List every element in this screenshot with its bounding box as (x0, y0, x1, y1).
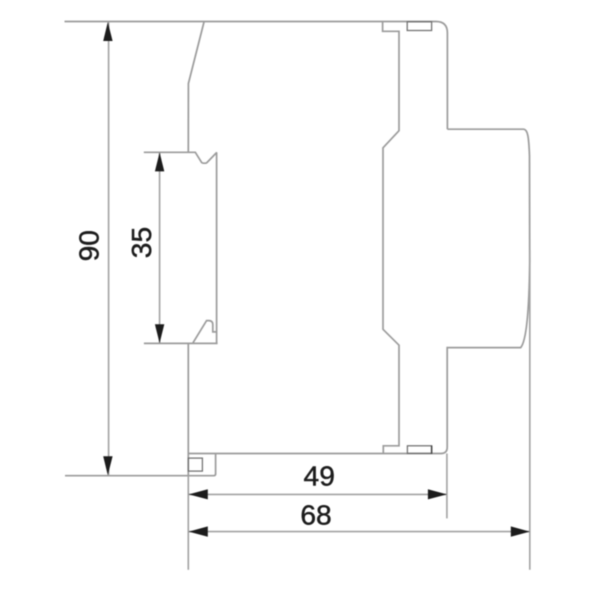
svg-text:35: 35 (125, 227, 157, 258)
svg-text:49: 49 (304, 459, 335, 491)
svg-text:90: 90 (72, 230, 104, 261)
svg-text:68: 68 (300, 498, 331, 530)
